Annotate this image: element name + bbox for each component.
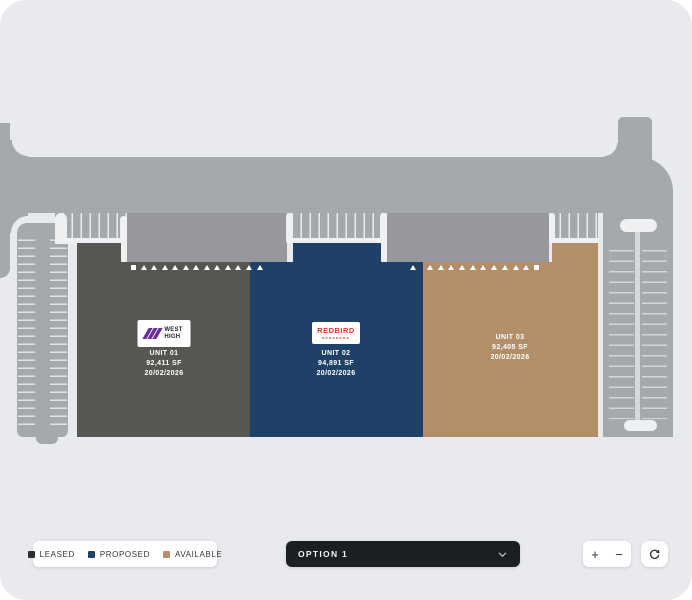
dock-square-marker [131, 265, 136, 270]
dock-arrow-marker [410, 265, 416, 270]
court-divider-post [286, 213, 293, 244]
parking-stalls [50, 233, 67, 429]
status-legend: LEASED PROPOSED AVAILABLE [33, 541, 217, 567]
parking-stalls [642, 241, 667, 419]
logo-text-line1: WEST [164, 327, 182, 334]
dock-markers-unit-01 [131, 265, 252, 270]
tenant-logo-west-high: WEST HIGH [138, 320, 191, 347]
legend-item-leased: LEASED [28, 550, 75, 559]
unit-02-notch [293, 243, 381, 263]
dock-arrow-marker [470, 265, 476, 270]
dock-arrow-marker [523, 265, 529, 270]
parking-island-top [620, 219, 657, 232]
site-plan-canvas: WEST HIGH UNIT 01 92,411 SF 20/02/2026 R… [0, 0, 692, 600]
unit-date: 20/02/2026 [316, 369, 355, 379]
proposed-swatch [88, 551, 95, 558]
dock-arrow-marker [513, 265, 519, 270]
dock-arrow-marker [172, 265, 178, 270]
dock-arrow-marker [438, 265, 444, 270]
option-dropdown-value: OPTION 1 [298, 549, 348, 559]
tenant-logo-redbird: REDBIRD [312, 322, 360, 344]
dock-markers-unit-02 [257, 265, 416, 270]
unit-03-label: UNIT 03 92,405 SF 20/02/2026 [490, 333, 529, 363]
chevron-down-icon [497, 549, 508, 560]
unit-03-notch [552, 243, 598, 263]
unit-name: UNIT 02 [316, 349, 355, 359]
dock-arrow-marker [491, 265, 497, 270]
truck-court-units-02-03 [387, 213, 549, 262]
dock-arrow-marker [246, 265, 252, 270]
parking-stalls [18, 233, 35, 429]
dock-arrow-marker [459, 265, 465, 270]
dock-arrow-marker [193, 265, 199, 270]
unit-date: 20/02/2026 [144, 369, 183, 379]
parking-row-unit-03 [552, 213, 598, 238]
parking-island-bottom [624, 420, 657, 431]
unit-date: 20/02/2026 [490, 353, 529, 363]
logo-text: REDBIRD [317, 327, 355, 335]
unit-name: UNIT 03 [490, 333, 529, 343]
unit-02-label: UNIT 02 94,891 SF 20/02/2026 [316, 349, 355, 379]
dock-square-marker [534, 265, 539, 270]
legend-label: AVAILABLE [175, 550, 222, 559]
truck-court-unit-01 [127, 213, 287, 262]
parking-lot-left [17, 223, 68, 437]
unit-area: 92,411 SF [144, 359, 183, 369]
zoom-in-button[interactable]: + [583, 541, 607, 567]
dock-arrow-marker [257, 265, 263, 270]
unit-01-notch [77, 243, 121, 263]
dock-arrow-marker [162, 265, 168, 270]
unit-01-label: UNIT 01 92,411 SF 20/02/2026 [144, 349, 183, 379]
legend-item-available: AVAILABLE [163, 550, 222, 559]
dock-arrow-marker [183, 265, 189, 270]
dock-arrow-marker [225, 265, 231, 270]
parking-lot-left-tab [36, 435, 58, 444]
legend-label: PROPOSED [100, 550, 150, 559]
zoom-out-button[interactable]: − [607, 541, 631, 567]
court-divider-post [120, 216, 127, 262]
dock-arrow-marker [448, 265, 454, 270]
legend-item-proposed: PROPOSED [88, 550, 150, 559]
road-fillet [604, 143, 618, 157]
dock-arrow-marker [214, 265, 220, 270]
dock-arrow-marker [235, 265, 241, 270]
dock-arrow-marker [204, 265, 210, 270]
parking-row-unit-02 [293, 213, 381, 238]
parking-stalls [609, 241, 634, 419]
available-swatch [163, 551, 170, 558]
legend-label: LEASED [40, 550, 75, 559]
unit-area: 92,405 SF [490, 343, 529, 353]
logo-tagline-marks [322, 337, 350, 339]
dock-arrow-marker [151, 265, 157, 270]
road-top-right-stub [618, 117, 652, 177]
dock-markers-unit-03 [427, 265, 539, 270]
unit-area: 94,891 SF [316, 359, 355, 369]
west-high-slashes-icon [145, 328, 160, 339]
rotate-icon [648, 548, 661, 561]
dock-arrow-marker [480, 265, 486, 270]
parking-lot-right [603, 213, 673, 437]
road-fillet [10, 140, 28, 157]
road-top [0, 157, 652, 213]
dock-arrow-marker [141, 265, 147, 270]
court-divider-post [380, 213, 387, 262]
dock-arrow-marker [427, 265, 433, 270]
court-divider-post [549, 213, 555, 244]
dock-arrow-marker [502, 265, 508, 270]
option-dropdown[interactable]: OPTION 1 [286, 541, 520, 567]
parking-aisle-rail [635, 227, 640, 425]
logo-text-line2: HIGH [164, 334, 182, 341]
leased-swatch [28, 551, 35, 558]
unit-name: UNIT 01 [144, 349, 183, 359]
zoom-controls: + − [583, 541, 631, 567]
rotate-button[interactable] [641, 541, 668, 567]
